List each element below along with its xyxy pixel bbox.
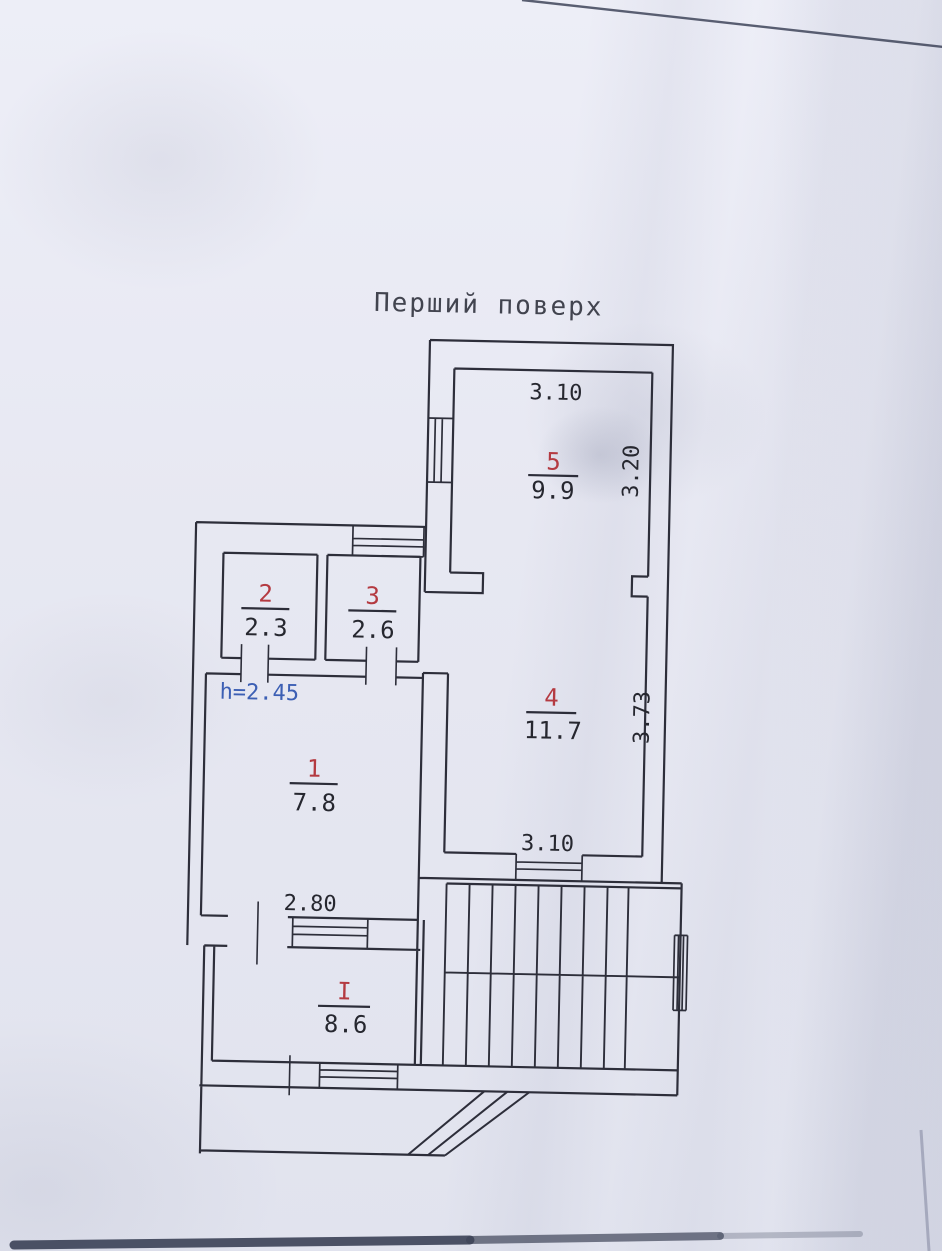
room-4-number: 4: [544, 683, 559, 711]
paper-edge-line-top: [522, 0, 942, 47]
dim-room5-width: 3.10: [529, 380, 582, 406]
room-1-number: 1: [306, 755, 321, 783]
paper-fold-line: [921, 1130, 929, 1251]
ceiling-height-note: h=2.45: [219, 680, 299, 707]
plan-group: Перший поверх 5 9.9 2 2.3 3 2.6 4 11.7 1…: [183, 284, 701, 1163]
entrance-steps: [408, 1090, 529, 1157]
room-I-number: I: [337, 977, 352, 1005]
paper-edge-band-bottom: [14, 1240, 470, 1245]
walls: [183, 335, 693, 1163]
room-1-area: 7.8: [292, 788, 336, 817]
room-5-number: 5: [546, 447, 561, 475]
dim-room4-depth: 3.73: [630, 691, 656, 744]
door-room4-to-stairs: [516, 854, 583, 881]
staircase-treads: [443, 883, 682, 1070]
paper-edge-band-bottom-tail: [720, 1234, 860, 1236]
door-ticks: [232, 644, 396, 1097]
scanned-floor-plan-page: Перший поверх 5 9.9 2 2.3 3 2.6 4 11.7 1…: [0, 0, 942, 1251]
room-3-area: 2.6: [351, 615, 395, 644]
floor-plan-drawing: Перший поверх 5 9.9 2 2.3 3 2.6 4 11.7 1…: [0, 0, 942, 1251]
room-5-area: 9.9: [531, 476, 575, 505]
window-roomI-bottom: [319, 1063, 398, 1090]
dim-room1-width: 2.80: [283, 891, 336, 917]
room-4-area: 11.7: [524, 716, 582, 745]
window-above-room3: [352, 525, 424, 556]
floor-title: Перший поверх: [374, 288, 604, 323]
window-room5-left: [427, 418, 453, 483]
room-3-number: 3: [365, 582, 380, 610]
paper-edge-band-bottom-fade: [470, 1236, 720, 1240]
dim-room5-depth: 3.20: [619, 445, 645, 498]
scan-artifacts: [14, 0, 942, 1251]
room-2-area: 2.3: [244, 613, 288, 642]
room-2-number: 2: [258, 579, 273, 607]
dim-room4-width: 3.10: [521, 831, 574, 857]
window-room1-bottom: [292, 917, 368, 949]
room-I-area: 8.6: [324, 1010, 368, 1039]
